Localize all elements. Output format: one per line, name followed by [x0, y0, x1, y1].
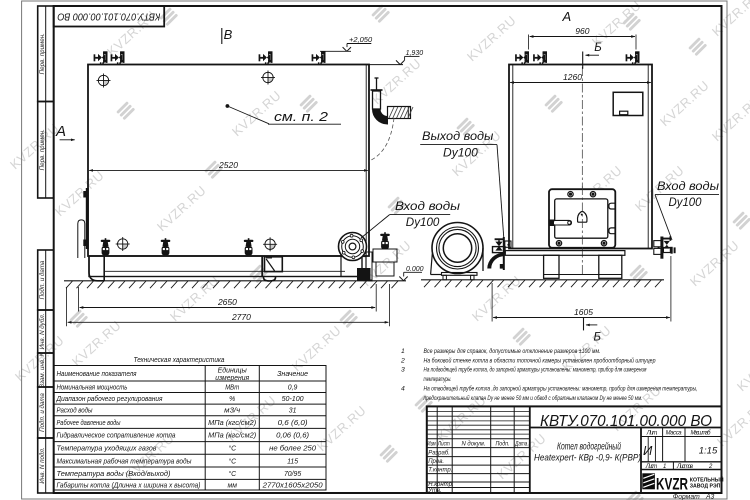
svg-text:КВТУ.070.101.00.000 ВО: КВТУ.070.101.00.000 ВО — [540, 413, 712, 430]
svg-text:1: 1 — [401, 348, 405, 355]
svg-text:КВТУ.070.101.00.000 ВО: КВТУ.070.101.00.000 ВО — [57, 11, 160, 23]
svg-text:KVZR.RU: KVZR.RU — [52, 168, 107, 220]
svg-text:Dy100: Dy100 — [406, 217, 440, 229]
svg-text:Утв.: Утв. — [427, 488, 442, 494]
svg-text:Подп.: Подп. — [496, 441, 510, 447]
svg-text:70/95: 70/95 — [284, 471, 301, 478]
svg-text:Перв. примен.: Перв. примен. — [39, 33, 46, 74]
svg-text:Наименование показателя: Наименование показателя — [57, 371, 137, 378]
svg-text:Б: Б — [594, 42, 602, 54]
svg-text:Формат: Формат — [673, 494, 700, 500]
svg-text:И: И — [643, 443, 653, 458]
svg-text:м3/ч: м3/ч — [224, 408, 240, 415]
svg-text:ЗАВОД РЭП: ЗАВОД РЭП — [690, 484, 721, 490]
svg-text:Пров.: Пров. — [428, 459, 444, 465]
svg-text:Номинальная мощность: Номинальная мощность — [57, 385, 128, 392]
svg-text:1,930: 1,930 — [406, 50, 424, 57]
svg-text:KVZR.RU: KVZR.RU — [464, 13, 519, 65]
svg-text:Подп. и дата: Подп. и дата — [39, 260, 46, 299]
svg-text:Значение: Значение — [277, 371, 308, 378]
svg-text:Лист: Лист — [645, 464, 658, 470]
svg-text:Лит.: Лит. — [646, 430, 658, 436]
svg-text:Инв. N дубл.: Инв. N дубл. — [39, 314, 46, 350]
svg-text:На отводящей трубе котла ,до з: На отводящей трубе котла ,до запорной ар… — [424, 385, 698, 393]
svg-text:А: А — [561, 9, 571, 24]
svg-text:960: 960 — [575, 26, 589, 36]
svg-text:Расход воды: Расход воды — [57, 407, 93, 415]
svg-text:В: В — [224, 27, 233, 42]
svg-text:Максимальная рабочая температу: Максимальная рабочая температура воды — [57, 457, 192, 465]
svg-text:Перв. примен.: Перв. примен. — [39, 129, 46, 170]
svg-text:KVZR: KVZR — [656, 476, 688, 494]
svg-text:2770х1605х2050: 2770х1605х2050 — [261, 483, 322, 490]
svg-text:1260: 1260 — [563, 72, 582, 82]
svg-text:KVZR.RU: KVZR.RU — [709, 93, 750, 145]
svg-text:+2,050: +2,050 — [349, 35, 373, 44]
svg-text:31: 31 — [289, 408, 297, 415]
svg-text:см. п. 2: см. п. 2 — [274, 110, 328, 124]
svg-text:°С: °С — [228, 457, 237, 465]
svg-text:Dy100: Dy100 — [669, 197, 703, 209]
svg-text:Техническая характеристика: Техническая характеристика — [134, 357, 225, 364]
svg-text:температуры.: температуры. — [424, 376, 452, 383]
svg-text:МВт: МВт — [225, 385, 239, 392]
svg-text:КОТЕЛЬНЫЙ: КОТЕЛЬНЫЙ — [690, 476, 724, 484]
svg-text:А: А — [55, 123, 66, 140]
svg-text:Т.контр.: Т.контр. — [428, 468, 452, 474]
svg-text:Температура уходящих газов: Температура уходящих газов — [57, 445, 157, 453]
svg-text:Температура воды (Вход/выход): Температура воды (Вход/выход) — [57, 470, 171, 478]
svg-text:4: 4 — [401, 386, 405, 393]
svg-text:KVZR.RU: KVZR.RU — [714, 398, 750, 450]
svg-text:мм: мм — [227, 483, 237, 490]
svg-text:На подводящей трубе котла, д: На подводящей трубе котла, до запорной а… — [424, 366, 647, 374]
svg-text:Листов: Листов — [676, 464, 693, 470]
svg-text:Б: Б — [594, 332, 602, 344]
svg-text:%: % — [229, 396, 235, 403]
svg-text:Габариты котла (Длинна х ширин: Габариты котла (Длинна х ширина х высота… — [57, 482, 201, 490]
svg-text:Heatexpert- КВр -0,9- К(РВР): Heatexpert- КВр -0,9- К(РВР) — [534, 453, 641, 464]
svg-text:2: 2 — [400, 357, 405, 364]
svg-text:Дата: Дата — [515, 441, 528, 447]
svg-text:Взам. инв. N: Взам. инв. N — [39, 351, 46, 388]
svg-text:KVZR.RU: KVZR.RU — [687, 238, 742, 290]
svg-text:KVZR.RU: KVZR.RU — [369, 56, 424, 108]
svg-text:Масштаб: Масштаб — [691, 430, 712, 436]
svg-text:На боковой стенке котла в обла: На боковой стенке котла в области топочн… — [424, 356, 656, 364]
svg-text:А3: А3 — [705, 494, 715, 500]
svg-text:предохранительный клапан Dу н: предохранительный клапан Dу не менее 50 … — [424, 394, 643, 402]
svg-text:0,9: 0,9 — [288, 385, 298, 392]
svg-text:0,6 (6,0): 0,6 (6,0) — [278, 420, 308, 427]
svg-text:Диапазон рабочего регулировани: Диапазон рабочего регулирования — [56, 395, 163, 403]
svg-text:Гидравлическое сопративление к: Гидравлическое сопративление котла — [57, 432, 176, 440]
svg-text:KVZR.RU: KVZR.RU — [734, 343, 750, 395]
svg-text:Инв. N подл.: Инв. N подл. — [39, 447, 46, 483]
svg-text:Котел водогрейный: Котел водогрейный — [557, 441, 621, 453]
svg-text:2770: 2770 — [231, 312, 251, 322]
svg-text:2650: 2650 — [217, 297, 237, 307]
svg-text:МПа (кгс/см2): МПа (кгс/см2) — [208, 420, 256, 427]
svg-text:Масса: Масса — [666, 430, 683, 436]
svg-text:°С: °С — [228, 445, 237, 453]
svg-text:Подп. и дата: Подп. и дата — [39, 393, 46, 432]
svg-text:1:15: 1:15 — [699, 446, 718, 457]
svg-text:2: 2 — [708, 464, 713, 470]
svg-text:Рабочее давление воды: Рабочее давление воды — [57, 419, 121, 427]
svg-text:115: 115 — [287, 458, 298, 465]
svg-text:N докум.: N докум. — [462, 441, 486, 447]
svg-text:Лист: Лист — [437, 441, 450, 447]
svg-text:Dy100: Dy100 — [443, 148, 478, 160]
svg-text:Разраб.: Разраб. — [428, 451, 450, 457]
svg-text:Выход воды: Выход воды — [422, 131, 494, 143]
svg-text:KVZR.RU: KVZR.RU — [154, 183, 209, 235]
svg-text:°С: °С — [228, 470, 237, 478]
svg-text:0.000: 0.000 — [406, 266, 424, 273]
svg-text:3: 3 — [401, 367, 405, 374]
svg-text:KVZR.RU: KVZR.RU — [657, 78, 712, 130]
svg-text:KVZR.RU: KVZR.RU — [289, 323, 344, 375]
svg-text:не более 250: не более 250 — [269, 445, 316, 453]
svg-text:1605: 1605 — [574, 307, 593, 317]
svg-text:50-100: 50-100 — [282, 396, 304, 403]
svg-text:Изм: Изм — [427, 441, 436, 447]
svg-text:0,06 (0,6): 0,06 (0,6) — [276, 433, 309, 440]
svg-text:измерения: измерения — [215, 375, 249, 382]
svg-text:МПа (кгс/см2): МПа (кгс/см2) — [208, 433, 256, 440]
svg-text:Вход воды: Вход воды — [657, 181, 720, 193]
svg-text:Единицы: Единицы — [218, 367, 247, 375]
svg-text:2520: 2520 — [218, 160, 238, 170]
svg-text:Все размеры для справок, допус: Все размеры для справок, допустимые откл… — [424, 347, 601, 355]
svg-text:1: 1 — [663, 464, 666, 470]
svg-text:Вход воды: Вход воды — [395, 201, 461, 213]
